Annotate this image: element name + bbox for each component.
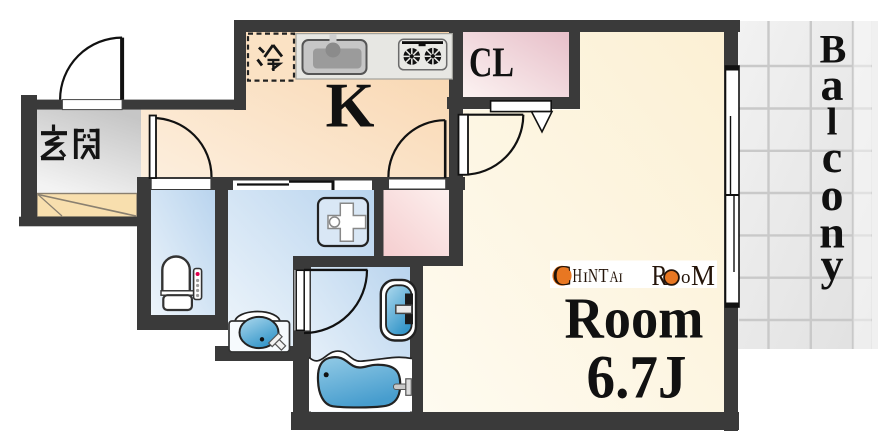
svg-text:T: T bbox=[599, 265, 609, 287]
svg-text:C: C bbox=[553, 260, 572, 292]
svg-text:y: y bbox=[821, 239, 844, 290]
svg-text:K: K bbox=[325, 71, 374, 141]
svg-text:H: H bbox=[573, 265, 583, 287]
svg-text:o: o bbox=[681, 267, 691, 288]
svg-text:M: M bbox=[691, 261, 715, 292]
svg-text:A: A bbox=[610, 269, 619, 286]
svg-text:6.7J: 6.7J bbox=[587, 345, 687, 412]
svg-text:I: I bbox=[619, 270, 623, 285]
svg-text:N: N bbox=[588, 265, 598, 287]
svg-text:CL: CL bbox=[469, 41, 514, 87]
svg-text:Room: Room bbox=[565, 286, 704, 351]
